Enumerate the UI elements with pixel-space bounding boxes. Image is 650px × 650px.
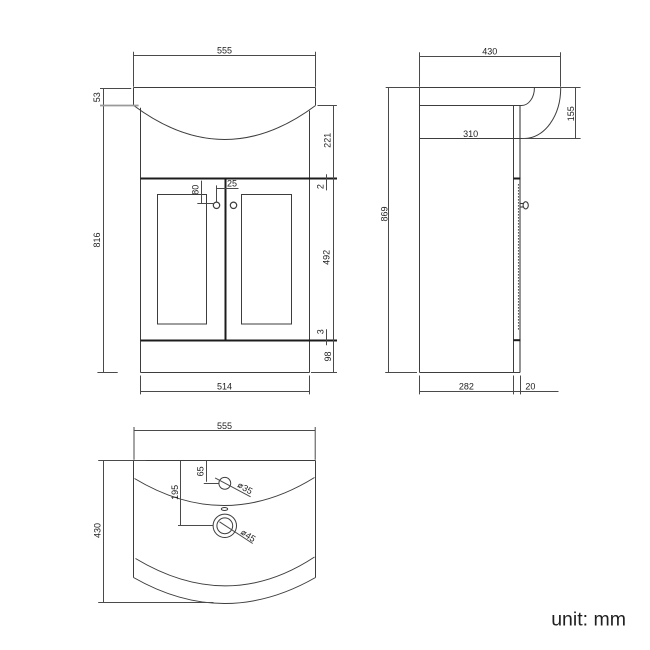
svg-text:80: 80 [191,185,201,195]
svg-text:221: 221 [323,133,333,148]
svg-text:2: 2 [316,184,326,189]
svg-text:65: 65 [196,466,206,476]
svg-text:514: 514 [217,382,232,392]
svg-text:310: 310 [463,129,478,139]
svg-text:25: 25 [227,179,237,189]
svg-text:282: 282 [459,382,474,392]
svg-text:869: 869 [379,206,389,221]
svg-text:155: 155 [566,106,576,121]
svg-text:492: 492 [322,250,332,265]
svg-text:3: 3 [316,329,326,334]
svg-text:98: 98 [323,351,333,361]
svg-text:816: 816 [92,232,102,247]
svg-text:unit: mm: unit: mm [551,609,626,631]
svg-text:555: 555 [217,421,232,431]
svg-text:555: 555 [217,46,232,56]
svg-text:53: 53 [92,92,102,102]
svg-text:430: 430 [482,47,497,57]
svg-text:20: 20 [525,382,535,392]
svg-text:195: 195 [170,485,180,500]
svg-text:430: 430 [93,523,103,538]
